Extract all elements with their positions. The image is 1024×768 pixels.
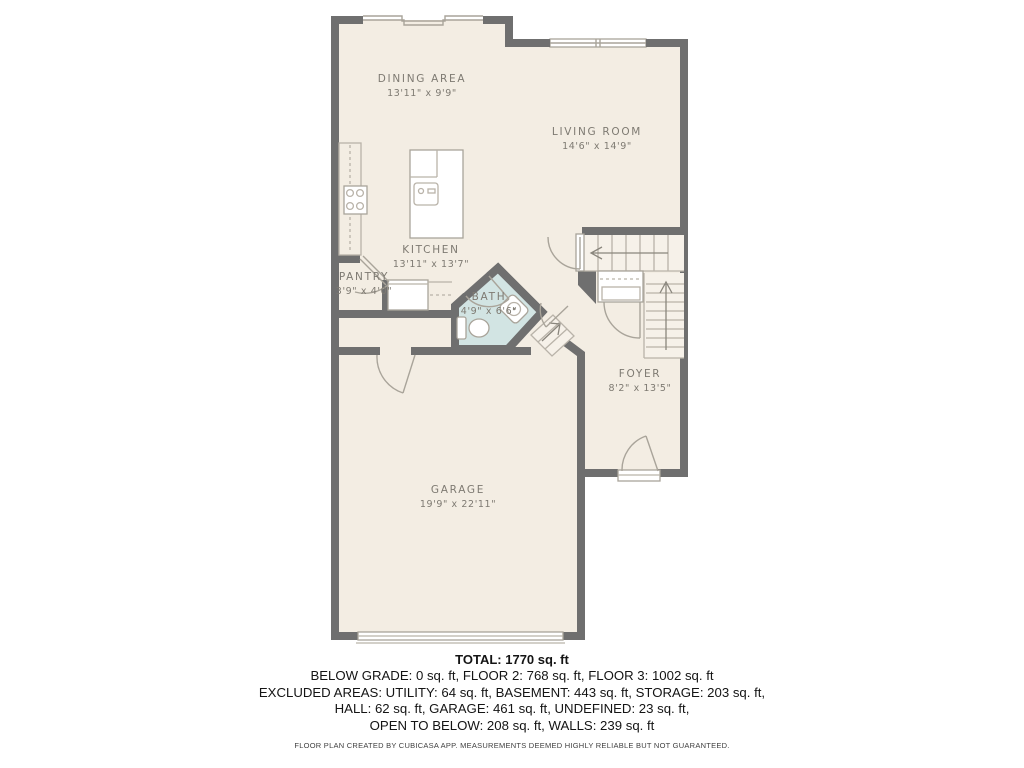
room-label-living: LIVING ROOM 14'6" x 14'9"	[552, 126, 642, 152]
room-dims: 8'2" x 13'5"	[608, 383, 671, 394]
room-dims: 13'11" x 9'9"	[378, 88, 466, 99]
room-dims: 14'6" x 14'9"	[552, 141, 642, 152]
window-living	[550, 39, 646, 47]
room-dims: 3'9" x 4'0"	[336, 286, 392, 297]
room-dims: 19'9" x 22'11"	[420, 499, 496, 510]
kitchen-island	[410, 150, 463, 238]
garage-door	[356, 632, 565, 643]
room-label-bath: BATH 4'9" x 6'6"	[461, 291, 517, 317]
stairs-lower-flight	[644, 273, 684, 358]
room-dims: 4'9" x 6'6"	[461, 306, 517, 317]
room-label-garage: GARAGE 19'9" x 22'11"	[420, 484, 496, 510]
summary-line-1: BELOW GRADE: 0 sq. ft, FLOOR 2: 768 sq. …	[0, 668, 1024, 685]
area-summary: TOTAL: 1770 sq. ft BELOW GRADE: 0 sq. ft…	[0, 652, 1024, 750]
room-label-pantry: PANTRY 3'9" x 4'0"	[336, 271, 392, 297]
room-name: DINING AREA	[378, 73, 466, 85]
floor-plan-page: DINING AREA 13'11" x 9'9" LIVING ROOM 14…	[0, 0, 1024, 768]
room-name: FOYER	[608, 368, 671, 380]
room-label-foyer: FOYER 8'2" x 13'5"	[608, 368, 671, 394]
stove	[344, 186, 367, 214]
room-label-dining: DINING AREA 13'11" x 9'9"	[378, 73, 466, 99]
room-name: BATH	[461, 291, 517, 303]
room-name: KITCHEN	[393, 244, 469, 256]
disclaimer: FLOOR PLAN CREATED BY CUBICASA APP. MEAS…	[0, 741, 1024, 750]
room-name: PANTRY	[336, 271, 392, 283]
toilet	[457, 317, 489, 339]
summary-line-3: HALL: 62 sq. ft, GARAGE: 461 sq. ft, UND…	[0, 701, 1024, 718]
summary-line-2: EXCLUDED AREAS: UTILITY: 64 sq. ft, BASE…	[0, 685, 1024, 702]
summary-line-4: OPEN TO BELOW: 208 sq. ft, WALLS: 239 sq…	[0, 718, 1024, 735]
total-area: TOTAL: 1770 sq. ft	[0, 652, 1024, 668]
room-label-kitchen: KITCHEN 13'11" x 13'7"	[393, 244, 469, 270]
room-name: LIVING ROOM	[552, 126, 642, 138]
room-dims: 13'11" x 13'7"	[393, 259, 469, 270]
room-name: GARAGE	[420, 484, 496, 496]
